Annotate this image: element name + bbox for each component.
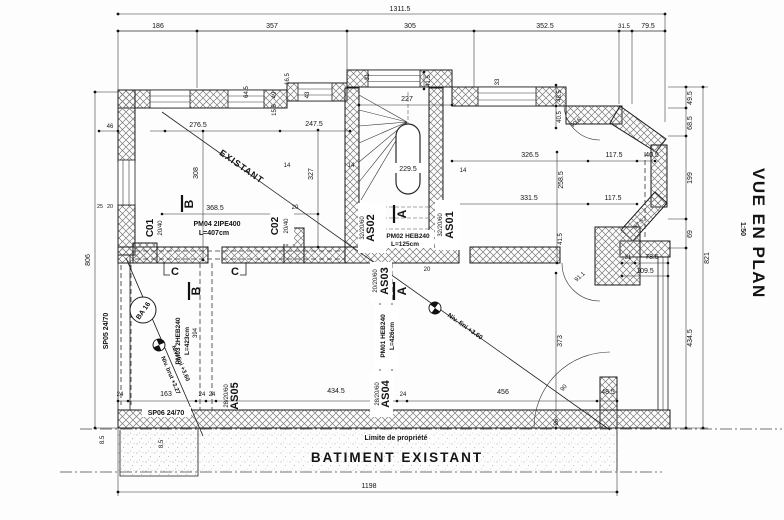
dim-label: 24 bbox=[117, 392, 124, 398]
dim-label: 69 bbox=[687, 230, 694, 238]
view-title: VUE EN PLAN bbox=[749, 168, 768, 299]
annotation-niv-fini: Niv. fini +3.60 bbox=[446, 312, 484, 342]
dim-label: 40.5 bbox=[645, 152, 659, 159]
dim-label: 31 bbox=[625, 255, 632, 261]
member-label-pm04: PM04 2IPE400 bbox=[193, 221, 240, 228]
dim-label: 16.5 bbox=[285, 73, 291, 85]
dim-label: 78.5 bbox=[645, 254, 659, 261]
dim-label: 31.5 bbox=[618, 24, 630, 30]
member-label-as01: AS01 bbox=[444, 211, 456, 239]
view-scale: 1:50 bbox=[739, 222, 746, 236]
dim-label: 352.5 bbox=[536, 23, 554, 30]
member-label-as03: AS03 bbox=[379, 267, 391, 295]
section-marker-a: A bbox=[395, 209, 409, 218]
dim-label: 109.5 bbox=[636, 268, 654, 275]
level-marker-icon bbox=[151, 337, 167, 353]
dim-label: 8.5 bbox=[100, 435, 106, 444]
dim-label: 14 bbox=[284, 163, 291, 169]
dim-label: 1311.5 bbox=[390, 6, 411, 13]
dim-label: 331.5 bbox=[520, 195, 538, 202]
dim-label: 373 bbox=[557, 335, 564, 347]
member-label-c02: C02 bbox=[270, 216, 281, 235]
member-label-pm02: PM02 HEB240 bbox=[386, 233, 430, 240]
dim-label: 24 bbox=[209, 392, 216, 398]
member-label-c01: C01 bbox=[145, 218, 156, 237]
dim-label: 33 bbox=[495, 78, 501, 85]
dim-label: 258.5 bbox=[558, 171, 565, 189]
dim-label: 821 bbox=[704, 252, 711, 264]
dim-label: 68.5 bbox=[687, 116, 694, 130]
dim-label: 327 bbox=[308, 168, 315, 180]
member-size-as03: 20/20/60 bbox=[373, 269, 379, 293]
dim-label: 49.5 bbox=[687, 91, 694, 105]
dim-label: 14 bbox=[348, 163, 355, 169]
dim-label: 43 bbox=[305, 91, 311, 98]
section-marker-b: B bbox=[182, 199, 196, 208]
member-label-as04: AS04 bbox=[380, 379, 392, 407]
dim-label: 229.5 bbox=[399, 166, 417, 173]
member-label-as05: AS05 bbox=[229, 382, 241, 410]
dim-label: 199 bbox=[687, 172, 694, 184]
door-arc-middle bbox=[562, 263, 600, 301]
dim-label: 326.5 bbox=[521, 152, 539, 159]
dim-label: 46 bbox=[107, 124, 114, 130]
drawing-title: VUE EN PLAN 1:50 bbox=[739, 168, 768, 299]
dim-label: 8.5 bbox=[159, 439, 165, 448]
annotation-limite: Limite de propriété bbox=[364, 435, 427, 442]
dim-label: 24 bbox=[400, 392, 407, 398]
dim-label: 434.5 bbox=[687, 329, 694, 347]
dim-label: 308 bbox=[193, 167, 200, 179]
dim-label: 394 bbox=[193, 327, 199, 338]
dim-label: 48.5 bbox=[601, 389, 615, 396]
dim-label: 806 bbox=[85, 254, 92, 266]
dim-label: 117.5 bbox=[605, 195, 622, 202]
member-label-pm01: PM01 HEB240 bbox=[380, 314, 387, 358]
member-size-as05: 28/20/60 bbox=[224, 384, 230, 408]
dim-label: 456 bbox=[497, 389, 509, 396]
dim-label: 15.5 bbox=[272, 104, 278, 116]
dim-label: 40.5 bbox=[557, 111, 563, 123]
dim-label: 20 bbox=[292, 205, 299, 211]
member-label-sp05: SP05 24/70 bbox=[103, 313, 110, 350]
column-c01 bbox=[133, 243, 157, 263]
dim-label: 41.5 bbox=[558, 233, 564, 245]
dim-label: 26 bbox=[554, 418, 560, 425]
dim-label: 247.5 bbox=[305, 121, 323, 128]
annotation-existant: EXISTANT bbox=[218, 148, 266, 186]
dim-label: 24 bbox=[199, 392, 206, 398]
dim-label: 227 bbox=[401, 96, 413, 103]
member-size-as04: 28/20/60 bbox=[375, 382, 381, 406]
member-size-as01: 32/20/60 bbox=[438, 213, 444, 237]
dim-label: 14 bbox=[460, 168, 467, 174]
dim-label: 434.5 bbox=[327, 388, 345, 395]
dim-label: 20 bbox=[424, 267, 431, 273]
section-marker-c: C bbox=[171, 266, 179, 278]
dim-label: 117.5 bbox=[606, 152, 623, 159]
dim-label: 20 bbox=[107, 204, 113, 210]
dim-label: 186 bbox=[152, 23, 164, 30]
section-marker-c: C bbox=[231, 266, 239, 278]
dim-label: 41.5 bbox=[426, 75, 432, 87]
diagonal-annotations bbox=[126, 112, 610, 436]
dim-label: 1198 bbox=[361, 483, 376, 490]
member-size-c01: 20/40 bbox=[158, 220, 164, 236]
dim-label: 368.5 bbox=[206, 205, 224, 212]
member-len-pm03: L=423cm bbox=[184, 327, 191, 355]
dim-label: 25 bbox=[97, 204, 103, 210]
annotation-batiment-existant: BATIMENT EXISTANT bbox=[311, 450, 483, 465]
dim-label: 49 bbox=[272, 91, 278, 98]
dim-label: 79.5 bbox=[641, 23, 655, 30]
angle-label: 90 bbox=[560, 383, 569, 392]
stair-oval bbox=[396, 124, 420, 194]
angle-label: 91.1 bbox=[574, 271, 587, 284]
member-size-as02: 32/20/60 bbox=[360, 216, 366, 240]
floor-plan-drawing: 1311.5 186 357 305 352.5 31.5 79.5 16.5 … bbox=[0, 0, 784, 520]
left-wall-lower bbox=[118, 255, 130, 410]
dim-label: 305 bbox=[404, 23, 416, 30]
dim-label: 163 bbox=[160, 391, 172, 398]
dim-label: 276.5 bbox=[189, 122, 207, 129]
member-len-pm04: L=407cm bbox=[199, 230, 229, 237]
section-marker-b: B bbox=[189, 286, 203, 295]
member-label-as02: AS02 bbox=[365, 214, 377, 242]
member-len-pm02: L=125cm bbox=[391, 241, 419, 248]
dim-label: 64.5 bbox=[244, 86, 250, 98]
floor-plan-page: 1311.5 186 357 305 352.5 31.5 79.5 16.5 … bbox=[0, 0, 784, 520]
dim-label: 48.5 bbox=[557, 90, 563, 102]
member-len-pm01: L=426cm bbox=[389, 322, 396, 350]
dim-label: 31 bbox=[365, 73, 371, 80]
member-size-c02: 20/40 bbox=[284, 218, 290, 234]
section-marker-a: A bbox=[395, 286, 409, 295]
member-label-sp06: SP06 24/70 bbox=[148, 410, 185, 417]
dim-label: 357 bbox=[266, 23, 278, 30]
level-marker-icon bbox=[427, 300, 444, 317]
